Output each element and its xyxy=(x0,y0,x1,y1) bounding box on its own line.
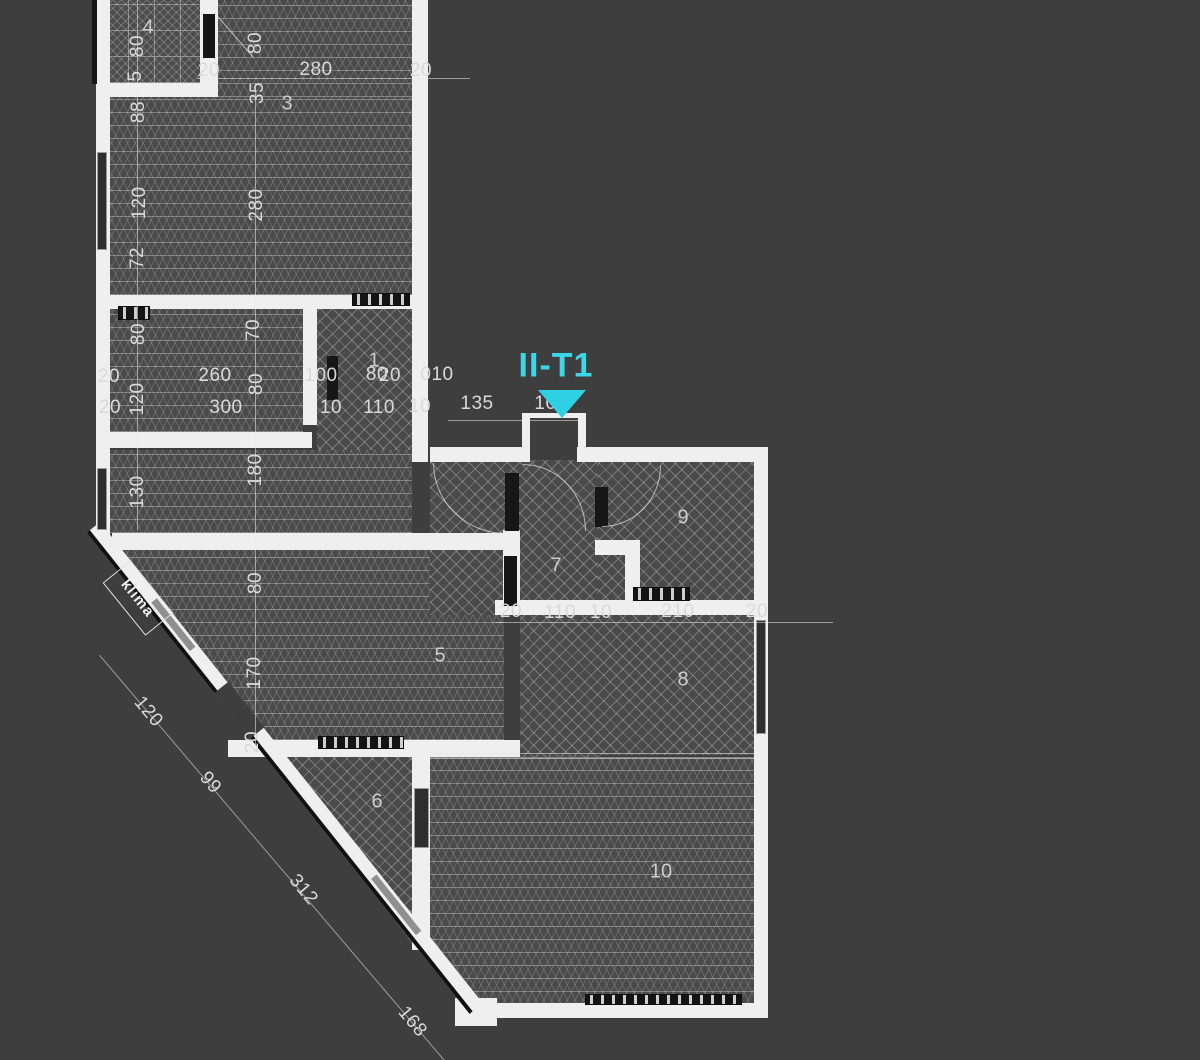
room-label-7: 7 xyxy=(550,555,561,578)
outer-wall-strip xyxy=(92,0,97,84)
dim-label: 80 xyxy=(245,572,267,594)
room-8-floor xyxy=(530,615,754,755)
window-icon xyxy=(97,468,107,530)
dim-label: 80 xyxy=(245,32,267,54)
window-icon xyxy=(756,620,766,734)
dim-label: 300 xyxy=(209,397,242,419)
wall-left xyxy=(96,0,110,535)
wall-rooms79-bottom xyxy=(495,600,768,615)
door-leaf-icon xyxy=(203,14,215,58)
entry-marker-triangle-icon[interactable] xyxy=(538,390,586,418)
room8-10-divider-line-a xyxy=(430,753,754,754)
room-label-9: 9 xyxy=(677,507,688,530)
door-leaf-icon xyxy=(504,556,517,606)
room-label-10: 10 xyxy=(650,861,672,884)
window-icon xyxy=(414,788,429,848)
wall-entry-top-left xyxy=(430,447,530,462)
dim-label: 110 xyxy=(544,602,576,624)
dim-label: 5 xyxy=(125,70,147,81)
dim-label: 70 xyxy=(243,319,265,341)
dim-label: 80 xyxy=(246,373,268,395)
wall-room10-bottom xyxy=(480,1003,768,1018)
radiator-icon xyxy=(318,736,404,749)
dim-label: 20 xyxy=(410,60,432,82)
radiator-icon xyxy=(118,306,150,320)
radiator-icon xyxy=(585,994,742,1005)
room-label-5: 5 xyxy=(434,645,445,668)
floor-plan: 20 280 20 80 5 88 120 72 80 120 130 20 2… xyxy=(0,0,1200,1060)
dim-label: 210 xyxy=(661,601,694,623)
room-label-1: 1 xyxy=(368,350,379,373)
dim-label: 20 xyxy=(242,731,264,753)
dim-label: 135 xyxy=(460,393,493,415)
dim-label: 110 xyxy=(363,397,395,419)
dim-label: 120 xyxy=(129,186,151,219)
dim-label: 280 xyxy=(299,59,332,81)
wall-room9-top xyxy=(595,447,768,462)
dim-label: 130 xyxy=(127,475,149,508)
window-icon xyxy=(97,152,107,250)
dim-label: 180 xyxy=(245,453,267,486)
room8-10-divider-line-b xyxy=(430,758,754,759)
radiator-icon xyxy=(352,293,410,306)
dim-line-entry xyxy=(448,420,585,421)
dim-label: 88 xyxy=(128,101,150,123)
room-label-3: 3 xyxy=(281,93,292,116)
dim-label: 20 xyxy=(198,60,220,82)
dim-label: 20 xyxy=(99,397,121,419)
dim-label: 10 xyxy=(590,602,612,624)
door-leaf-icon xyxy=(505,473,519,531)
dim-label: 100 xyxy=(304,365,337,387)
dim-label: 20 xyxy=(500,601,522,623)
room-10-floor xyxy=(420,757,754,1005)
wall-room5-top xyxy=(112,533,520,550)
dim-label: 80 xyxy=(128,323,150,345)
dim-label: 170 xyxy=(244,656,266,689)
room-label-4: 4 xyxy=(142,17,153,40)
dim-label: 35 xyxy=(247,82,269,104)
dim-label: 20 xyxy=(746,601,768,623)
dim-label: 20 xyxy=(379,365,401,387)
dim-label: 280 xyxy=(246,188,268,221)
dim-label: 72 xyxy=(127,247,149,269)
wall-room4-bottom xyxy=(96,83,218,97)
wall-hall-horizontal xyxy=(96,432,312,448)
dim-label: 10 xyxy=(320,397,342,419)
dim-label: 10 xyxy=(409,396,431,418)
dim-line-mid-col xyxy=(255,83,256,752)
radiator-icon xyxy=(633,587,690,601)
entry-marker-label[interactable]: II-T1 xyxy=(519,347,594,386)
dim-label: 312 xyxy=(284,870,322,910)
dim-label: 120 xyxy=(127,382,149,415)
dim-label: 20 xyxy=(98,366,120,388)
room-label-6: 6 xyxy=(371,791,382,814)
wall-room1-left xyxy=(303,295,317,425)
room-4-floor xyxy=(102,0,200,83)
room-label-8: 8 xyxy=(677,669,688,692)
dim-label: 010 xyxy=(420,364,453,386)
dim-label: 260 xyxy=(198,365,231,387)
